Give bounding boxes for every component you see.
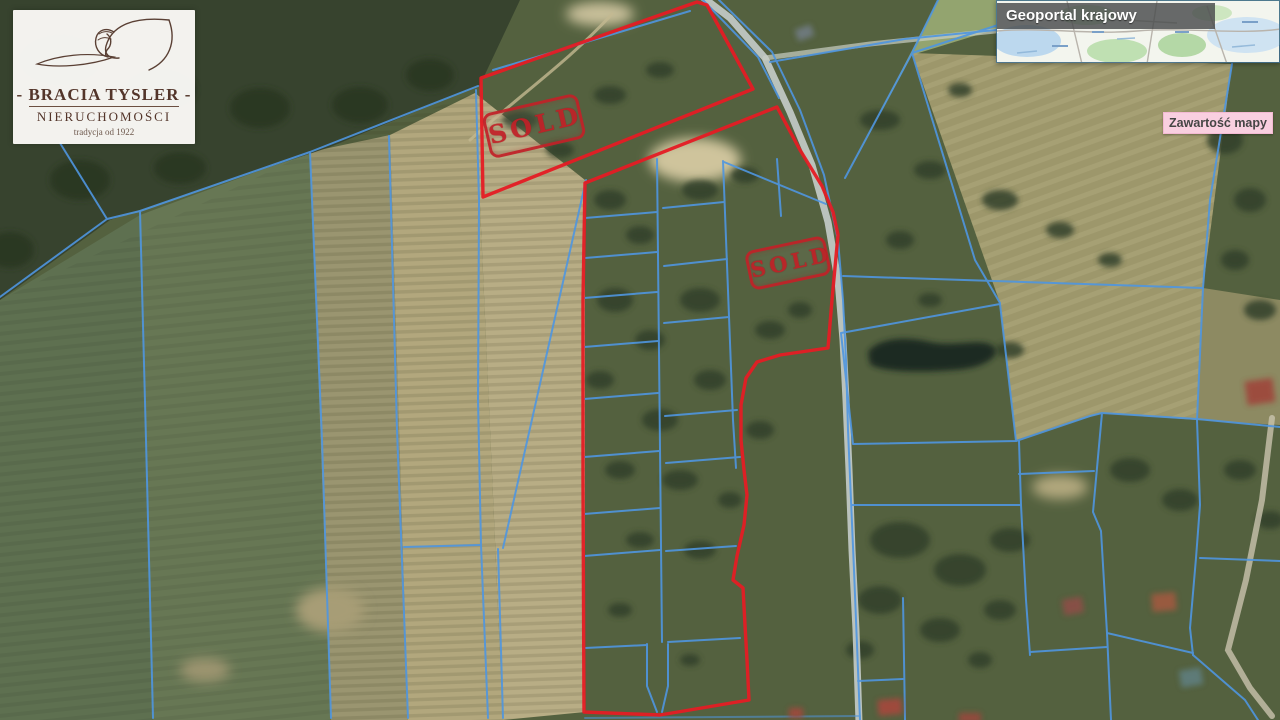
geoportal-map-view: - BRACIA TYSLER - NIERUCHOMOŚCI tradycja… (0, 0, 1280, 720)
agency-logo-sketch (19, 14, 189, 80)
agency-logo: - BRACIA TYSLER - NIERUCHOMOŚCI tradycja… (13, 10, 195, 144)
agency-name: - BRACIA TYSLER - (13, 85, 195, 104)
minimap-panel-title: Geoportal krajowy (997, 3, 1215, 29)
agency-tagline: tradycja od 1922 (13, 127, 195, 137)
logo-divider (29, 106, 179, 107)
map-contents-toggle[interactable]: Zawartość mapy (1163, 112, 1273, 134)
agency-subtitle: NIERUCHOMOŚCI (13, 109, 195, 124)
geoportal-minimap-panel[interactable]: Geoportal krajowy (996, 0, 1280, 63)
